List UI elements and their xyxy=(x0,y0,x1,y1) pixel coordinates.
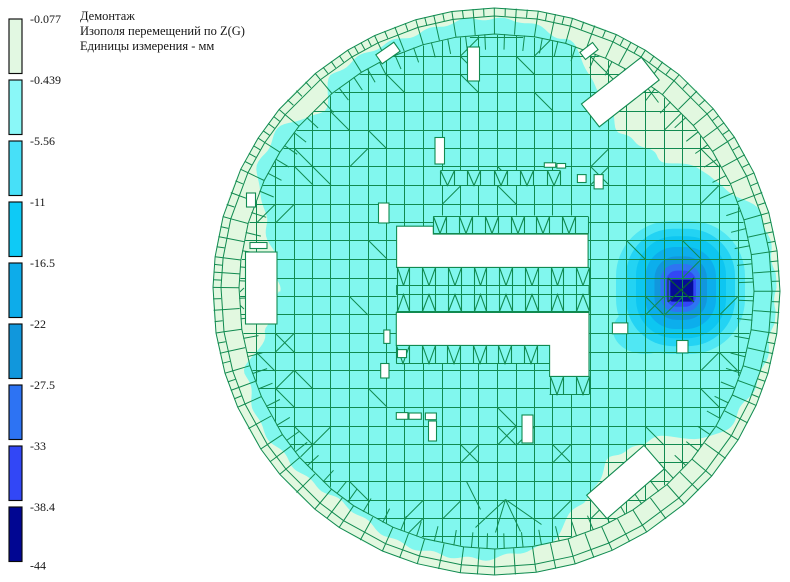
svg-text:-11: -11 xyxy=(30,195,46,209)
svg-text:-22: -22 xyxy=(30,317,46,331)
svg-text:-0.439: -0.439 xyxy=(30,73,61,87)
svg-text:-5.56: -5.56 xyxy=(30,134,55,148)
svg-text:-38.4: -38.4 xyxy=(30,500,55,514)
svg-text:-44: -44 xyxy=(30,559,46,573)
svg-text:-27.5: -27.5 xyxy=(30,378,55,392)
svg-text:Демонтаж: Демонтаж xyxy=(80,9,135,23)
svg-text:-33: -33 xyxy=(30,439,46,453)
svg-text:Единицы измерения - мм: Единицы измерения - мм xyxy=(80,39,214,53)
svg-text:-16.5: -16.5 xyxy=(30,256,55,270)
svg-text:Изополя перемещений по Z(G): Изополя перемещений по Z(G) xyxy=(80,24,245,38)
svg-text:-0.077: -0.077 xyxy=(30,12,61,26)
